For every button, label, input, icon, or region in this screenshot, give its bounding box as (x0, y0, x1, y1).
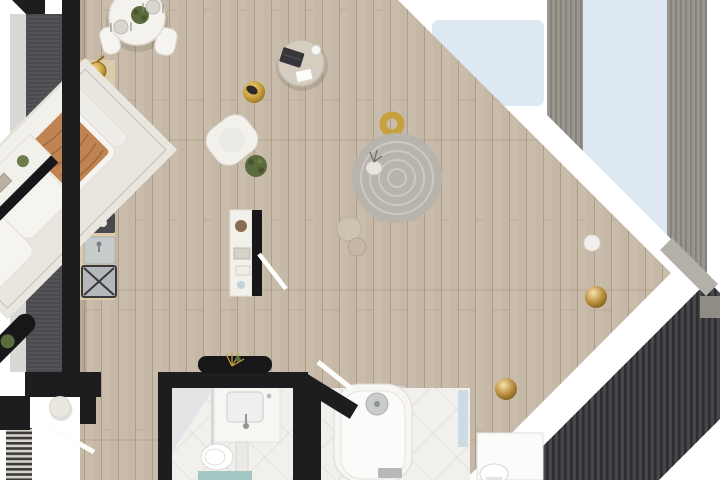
floor-plan-canvas (0, 0, 720, 480)
entry-wall-horizontal (25, 372, 101, 397)
entry-round-pouf (50, 397, 71, 418)
left-wall (62, 0, 80, 374)
round-gray-rug (352, 133, 442, 223)
gold-sphere-lamp-1 (585, 286, 607, 308)
kitchen-sink (84, 237, 115, 264)
facade-strip-b-texture (667, 0, 707, 275)
bathroom-left-wall (158, 372, 172, 480)
table-plant-leaf (134, 10, 139, 15)
place-setting-2 (146, 0, 160, 14)
entry-doormat-stripes (6, 428, 32, 480)
floor-plant (245, 155, 267, 177)
shelf-box (236, 266, 250, 275)
vanity-sink (214, 386, 280, 442)
shelf-radio (234, 248, 250, 259)
wc-niche (477, 433, 543, 480)
floor-pouf-2 (348, 238, 366, 256)
bathroom (172, 386, 293, 480)
table-vase (311, 45, 321, 55)
bathtub-drain (378, 468, 402, 478)
vanity-stool (584, 235, 600, 251)
shelf-bottle (237, 281, 245, 289)
teal-bath-mat (198, 471, 252, 480)
sink-faucet (243, 423, 249, 429)
corner-trim-block (700, 296, 720, 318)
gold-sphere-lamp-2 (495, 378, 517, 400)
place-setting-1 (114, 20, 128, 34)
shower-glass-panel (211, 388, 214, 452)
entry-wall-stub (80, 394, 96, 424)
bathroom-top-wall (158, 372, 308, 388)
floor-pouf-1 (337, 217, 361, 241)
shelf-vase (235, 220, 247, 232)
table-plant-leaf (142, 16, 147, 21)
floor-plan-render (0, 0, 720, 480)
glass-screen (458, 390, 468, 447)
soap-item (267, 394, 272, 399)
entry-wall-lower (0, 396, 30, 430)
bathtub-faucet-dot (374, 401, 380, 407)
appliance-x-module (82, 266, 116, 297)
